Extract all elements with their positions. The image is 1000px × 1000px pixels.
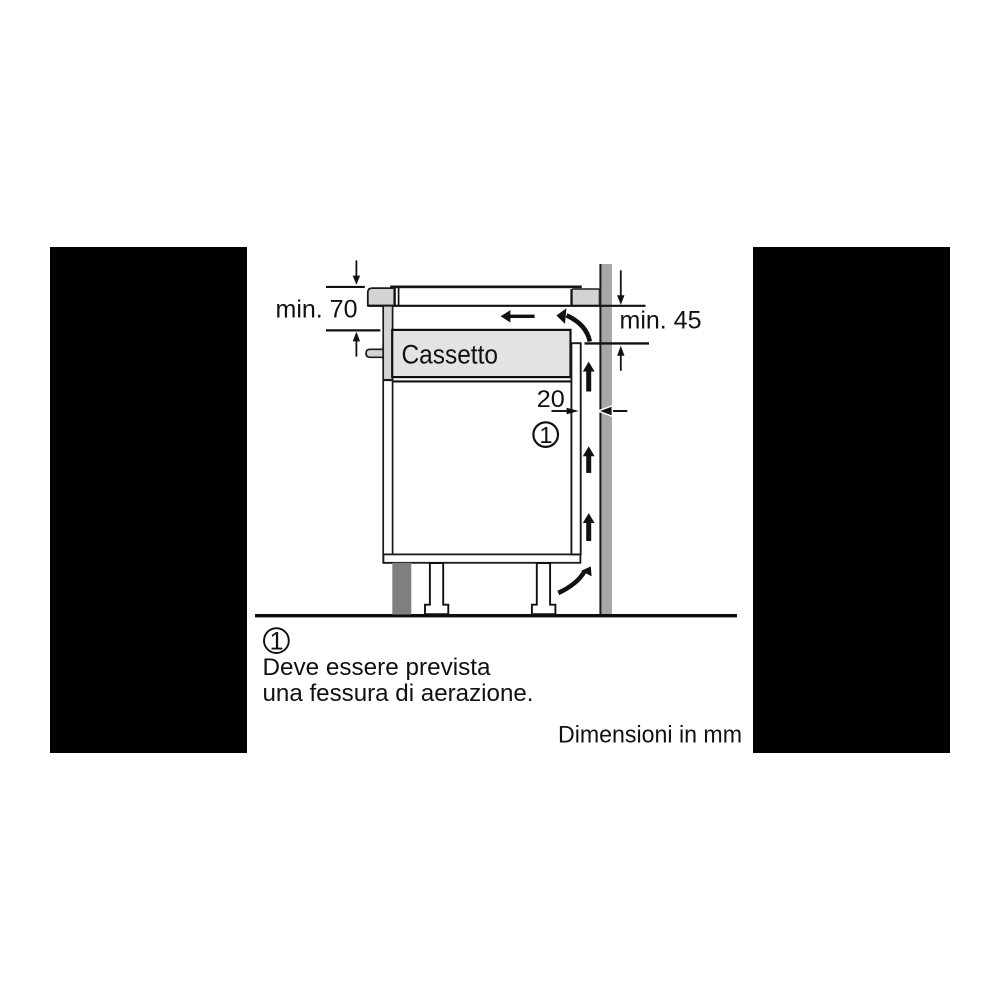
svg-text:1: 1 [539, 422, 552, 448]
svg-text:Deve essere prevista: Deve essere prevista [263, 654, 492, 681]
svg-text:1: 1 [270, 627, 284, 655]
svg-text:Cassetto: Cassetto [402, 339, 499, 369]
svg-text:min. 45: min. 45 [620, 306, 702, 334]
svg-text:una fessura di aerazione.: una fessura di aerazione. [263, 680, 534, 707]
svg-text:20: 20 [537, 386, 565, 413]
svg-text:min. 70: min. 70 [276, 296, 358, 324]
svg-text:Dimensioni in mm: Dimensioni in mm [558, 721, 742, 748]
